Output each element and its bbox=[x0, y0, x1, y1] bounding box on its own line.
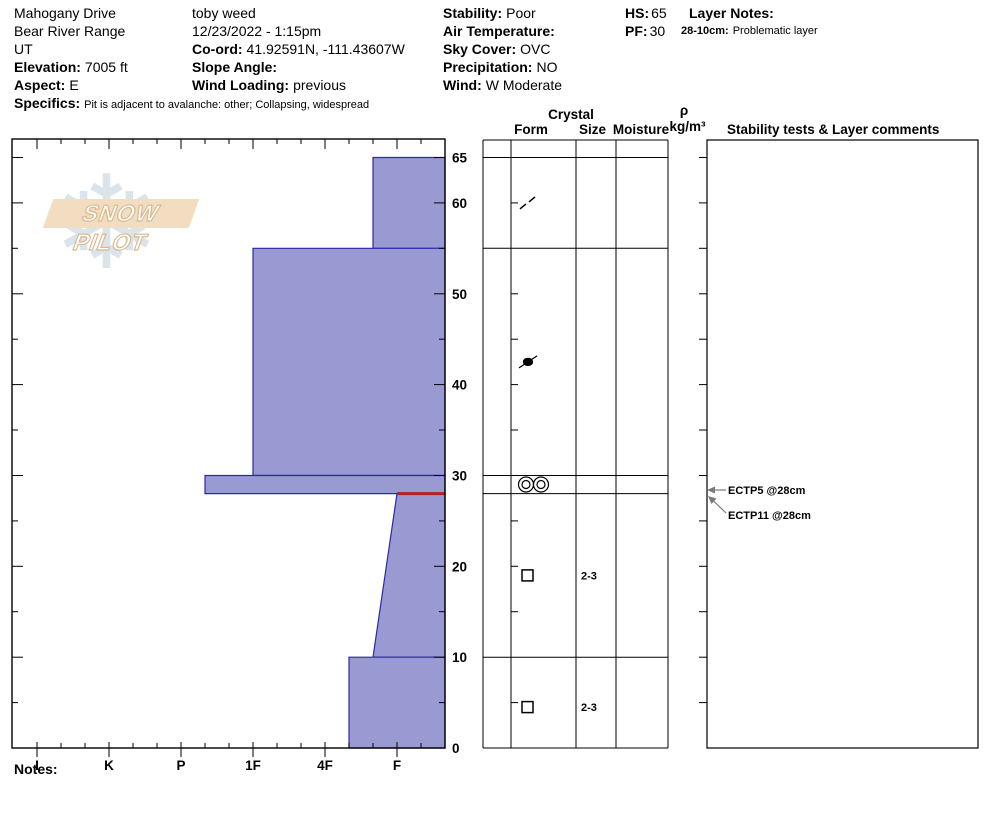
notes-label: Notes: bbox=[14, 761, 58, 777]
chart-text: ECTP11 @28cm bbox=[728, 510, 811, 522]
grain-symbol bbox=[534, 477, 549, 492]
snowpit-report: Mahogany Drive Bear River Range UT Eleva… bbox=[0, 0, 994, 840]
chart-text: K bbox=[104, 758, 114, 773]
chart-text: 20 bbox=[452, 559, 467, 574]
grain-symbol bbox=[519, 477, 534, 492]
snow-layer bbox=[205, 476, 445, 494]
grain-symbol bbox=[523, 358, 533, 366]
chart-text: ECTP5 @28cm bbox=[728, 485, 806, 497]
chart-text: 30 bbox=[452, 469, 467, 484]
comments-box bbox=[707, 140, 978, 748]
chart-text: 1F bbox=[245, 758, 261, 773]
column-header-crystal: Crystal bbox=[535, 107, 607, 122]
chart-text: F bbox=[393, 758, 401, 773]
chart-text: 2-3 bbox=[581, 702, 597, 714]
test-arrow bbox=[707, 487, 715, 494]
grain-symbol bbox=[522, 702, 533, 713]
column-header-density-units: kg/m³ bbox=[660, 119, 715, 134]
chart-text: P bbox=[176, 758, 185, 773]
chart-text: 10 bbox=[452, 650, 467, 665]
chart-text: 2-3 bbox=[581, 570, 597, 582]
chart-text: 60 bbox=[452, 196, 467, 211]
chart-text: 0 bbox=[452, 741, 460, 756]
column-header-form: Form bbox=[501, 122, 561, 137]
column-header-stability-tests: Stability tests & Layer comments bbox=[727, 122, 939, 137]
grain-symbol bbox=[522, 570, 533, 581]
chart-text: 4F bbox=[317, 758, 333, 773]
snow-layer bbox=[373, 494, 445, 658]
chart-text: 50 bbox=[452, 287, 467, 302]
chart-text: 65 bbox=[452, 151, 468, 166]
chart-text: 40 bbox=[452, 378, 467, 393]
column-header-density-symbol: ρ bbox=[664, 103, 704, 118]
snow-layer bbox=[253, 248, 445, 475]
snow-layer bbox=[349, 657, 445, 748]
